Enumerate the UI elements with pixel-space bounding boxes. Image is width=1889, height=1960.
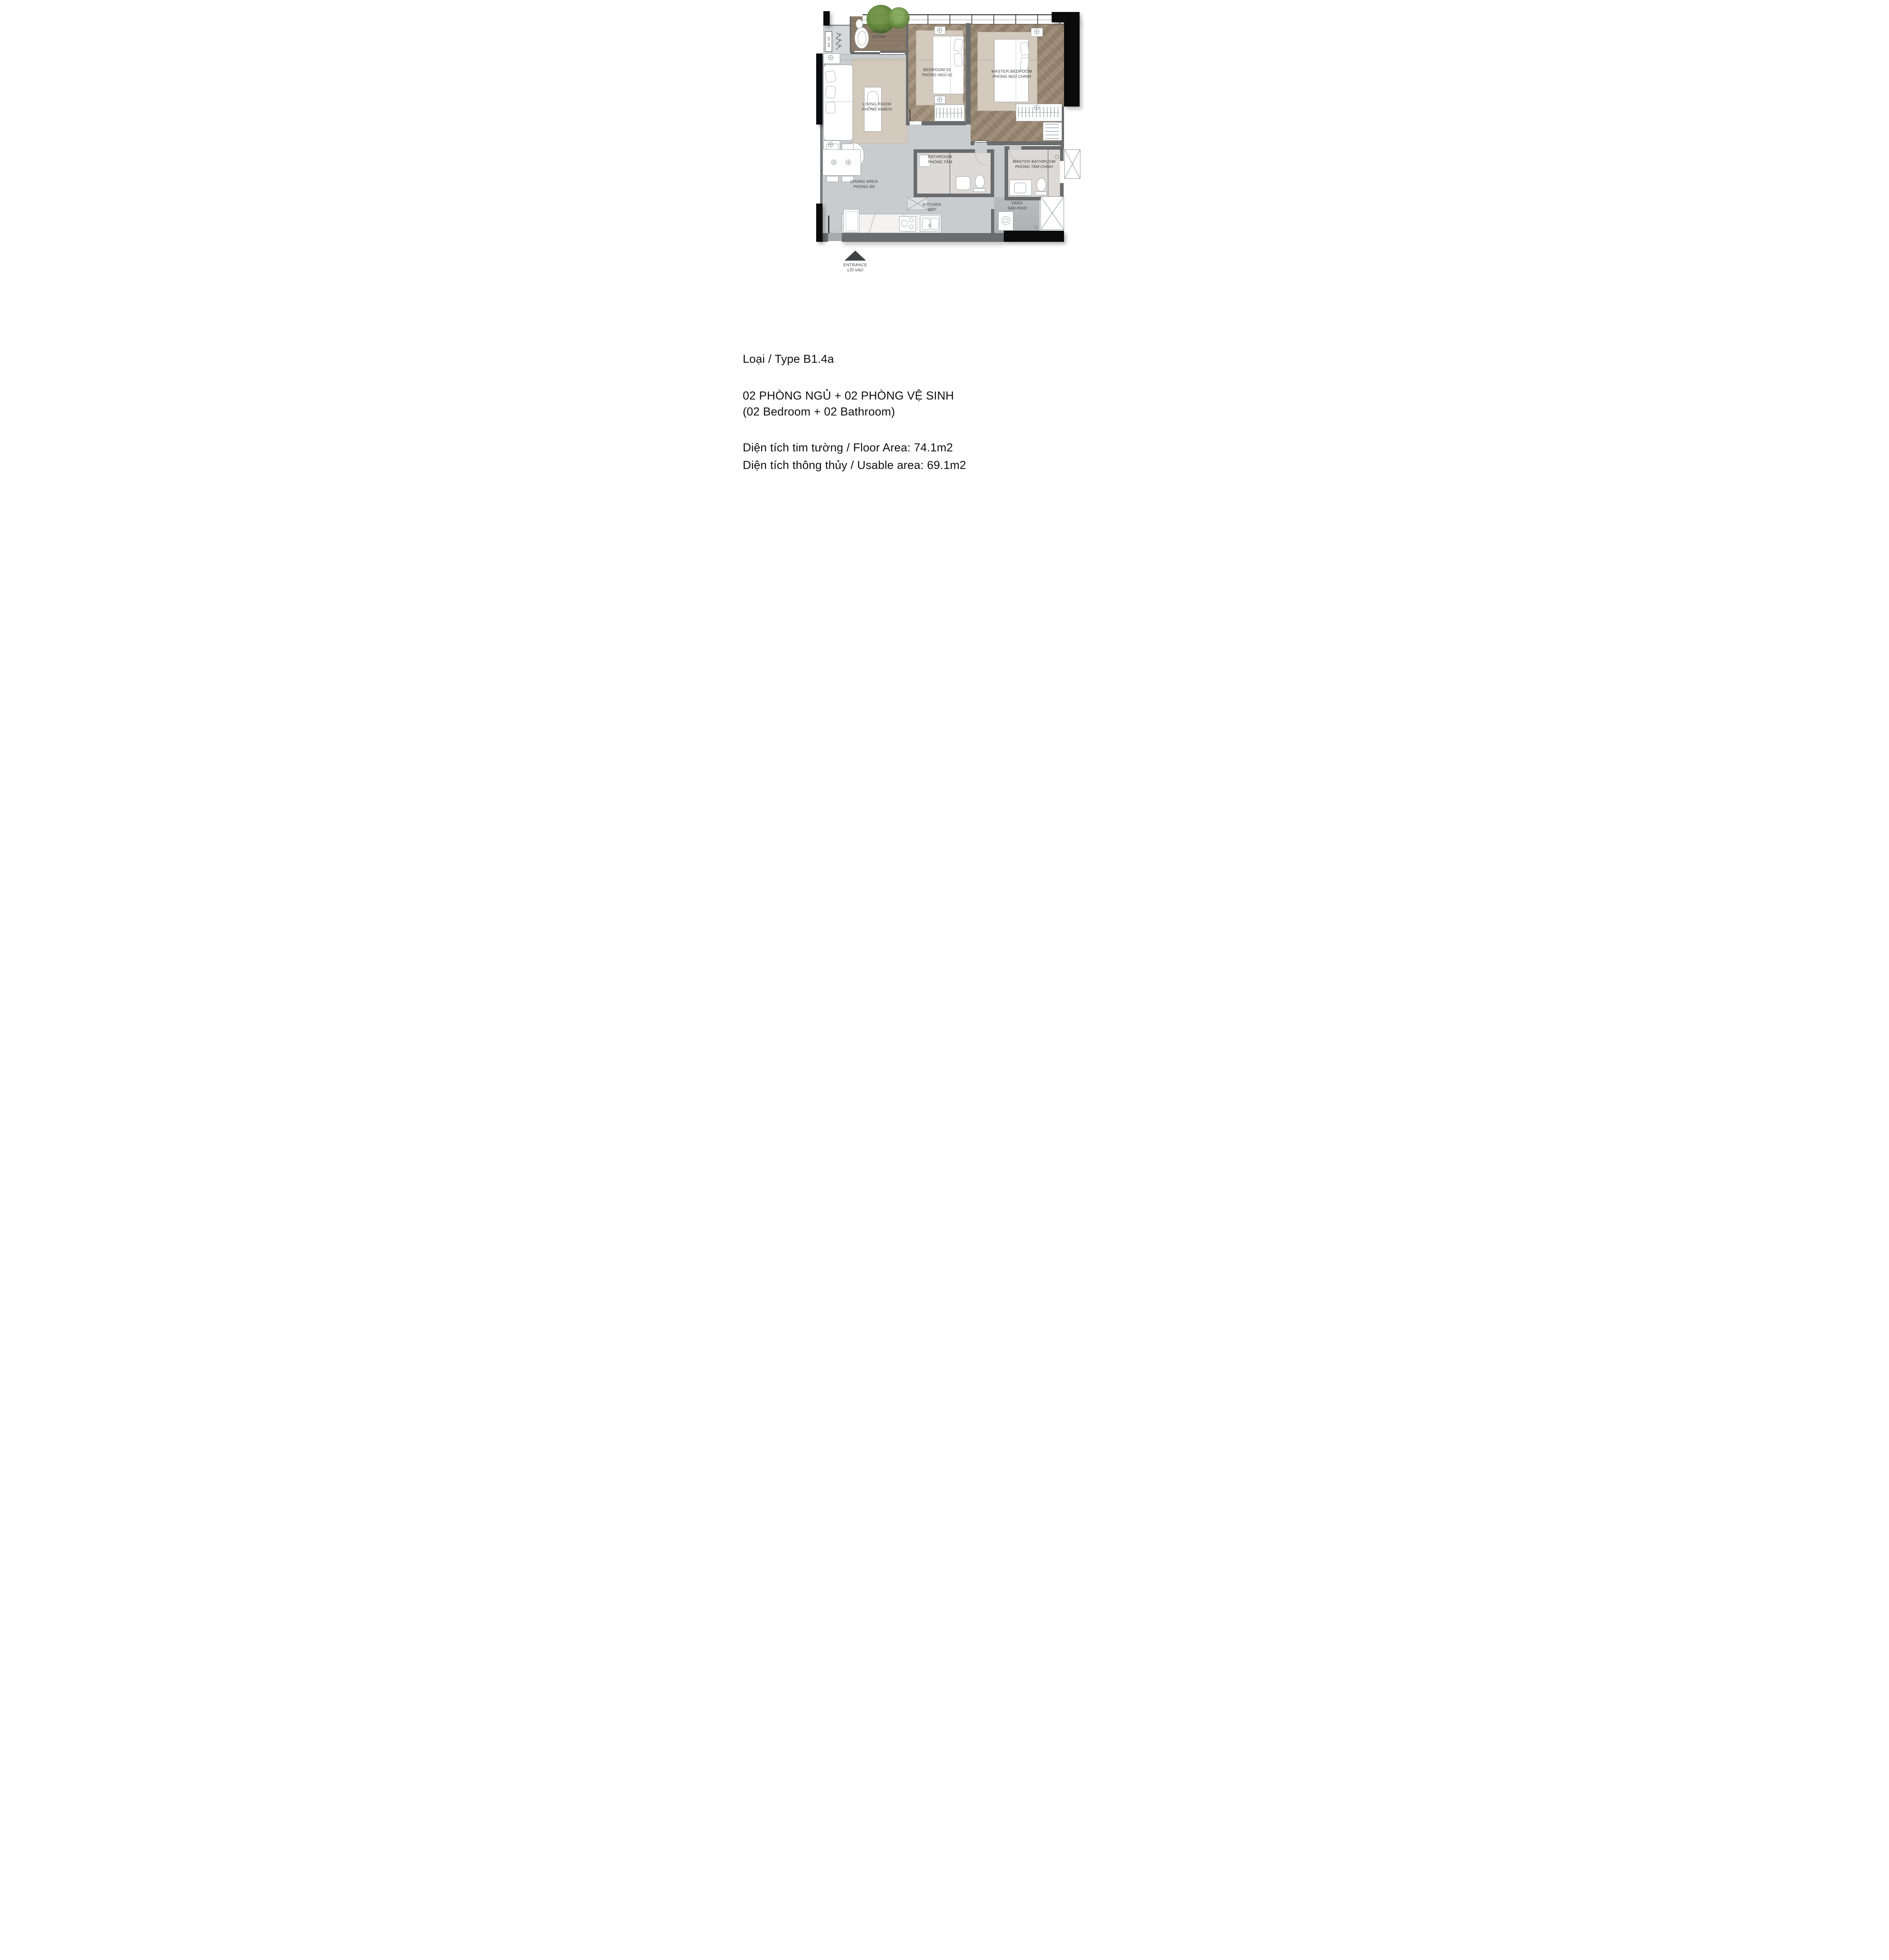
- room-label-loggia-en: LOGGIA: [870, 30, 887, 34]
- room-label-master-bedroom-vi: PHÒNG NGỦ CHÍNH: [991, 75, 1032, 79]
- room-label-kitchen-vi: BẾP: [923, 208, 942, 213]
- burner-icon: [901, 220, 908, 227]
- bathroom-door-gap: [975, 149, 987, 153]
- blanket-fold-line: [950, 36, 951, 94]
- room-label-living-room-en: LIVING ROOM: [862, 102, 892, 107]
- room-label-master-bathroom: MASTER BATHROOM PHÒNG TẮM CHÍNH: [1013, 160, 1055, 169]
- faucet-icon: [928, 224, 931, 227]
- dining-table: [823, 149, 861, 176]
- room-label-master-bathroom-en: MASTER BATHROOM: [1013, 160, 1055, 164]
- kitchen-yard-wall: [991, 209, 994, 233]
- entrance-label-en: ENTRANCE: [843, 263, 867, 268]
- room-label-bathroom-en: BATHROOM: [928, 155, 952, 160]
- room-label-living-room-vi: PHÒNG KHÁCH: [862, 107, 892, 112]
- entrance-door-leaf: [828, 216, 829, 233]
- room-label-kitchen-en: KITCHEN: [923, 203, 942, 208]
- usable-area-line: Diện tích thông thủy / Usable area: 69.1…: [743, 459, 966, 472]
- room-label-loggia: LOGGIA LÔ GIA: [870, 30, 887, 39]
- room-label-master-bedroom-en: MASTER BEDROOM: [991, 69, 1032, 74]
- bedroom02-door-leaf: [910, 109, 910, 121]
- shear-wall-left-lower: [816, 204, 823, 242]
- shear-wall-right: [1064, 21, 1080, 107]
- bottom-wall: [842, 233, 1004, 242]
- room-label-bedroom02-en: BEDROOM 02: [922, 68, 952, 73]
- ac-unit-box: AC X2: [825, 31, 832, 52]
- pillow: [1020, 42, 1029, 55]
- master-toilet-icon: [1036, 178, 1046, 192]
- master-sink-icon: [1014, 183, 1026, 193]
- lamp-icon: [828, 142, 833, 147]
- bath-hallway-floor: [994, 149, 1005, 197]
- pillow: [825, 70, 836, 83]
- storage-closet-x: [1040, 196, 1064, 230]
- entrance-label-vi: LỐI VÀO: [843, 268, 867, 273]
- loggia-planter-inner: [858, 31, 866, 45]
- pillow: [1020, 57, 1029, 71]
- sofa-seat-line: [824, 101, 852, 102]
- dining-chair: [842, 144, 854, 150]
- burner-icon: [909, 218, 914, 222]
- floor-plan: AC X2 LOGGIA LÔ GIA BEDROOM 02 PHÒNG NGỦ…: [816, 9, 1080, 243]
- pillow: [825, 102, 835, 113]
- master-door-leaf: [974, 140, 987, 142]
- pillow: [953, 53, 963, 67]
- pillow: [825, 86, 836, 99]
- lamp-icon: [1034, 105, 1039, 110]
- config-line-vi: 02 PHÒNG NGỦ + 02 PHÒNG VỆ SINH: [743, 390, 954, 403]
- loggia-basin: [856, 19, 863, 29]
- lamp-icon: [1034, 29, 1039, 34]
- bedroom02-bottom-wall-b: [922, 121, 966, 125]
- entrance-label: ENTRANCE LỐI VÀO: [843, 263, 867, 273]
- config-line-en: (02 Bedroom + 02 Bathroom): [743, 405, 895, 419]
- lamp-icon: [937, 28, 942, 33]
- room-label-kitchen: KITCHEN BẾP: [923, 203, 942, 212]
- floor-area-line: Diện tích tim tường / Floor Area: 74.1m2: [743, 441, 953, 455]
- refrigerant-pipe-icon: [834, 32, 844, 50]
- sink-icon: [956, 176, 970, 190]
- loggia-sliding-door: [854, 50, 881, 53]
- lamp-icon: [828, 55, 833, 60]
- bush-plant-icon: [888, 7, 910, 29]
- sink-basin: [931, 218, 939, 230]
- floor-drain-icon: [900, 45, 904, 49]
- sink-basin: [922, 218, 930, 230]
- room-label-master-bedroom: MASTER BEDROOM PHÒNG NGỦ CHÍNH: [991, 69, 1032, 79]
- room-label-yard-vi: SÂN PHƠI: [1007, 206, 1027, 211]
- master-bottom-wall-a: [971, 141, 974, 145]
- shear-wall-left-upper: [816, 53, 823, 125]
- fridge-inner: [846, 212, 858, 231]
- loggia-sliding-door-2: [879, 52, 906, 55]
- toilet-icon: [975, 175, 985, 188]
- room-label-loggia-vi: LÔ GIA: [870, 35, 887, 40]
- floorplan-page: AC X2 LOGGIA LÔ GIA BEDROOM 02 PHÒNG NGỦ…: [708, 0, 1181, 490]
- entrance-arrow-icon: [845, 251, 866, 261]
- wardrobe-rail: [1018, 112, 1060, 113]
- table-lamp-icon: [846, 160, 851, 165]
- wardrobe-hangers: [1045, 124, 1059, 139]
- toilet-tank: [973, 188, 985, 192]
- room-label-bathroom-vi: PHÒNG TẮM: [928, 160, 952, 165]
- bedroom02-left-wall: [906, 23, 908, 125]
- shear-wall-bottom-right: [1004, 231, 1064, 242]
- table-lamp-icon: [831, 160, 837, 165]
- entrance-threshold: [828, 233, 842, 241]
- room-label-yard: YARD SÂN PHƠI: [1007, 201, 1027, 211]
- ac-loggia-wall: [850, 16, 851, 52]
- exterior-ledge-x: [1064, 149, 1080, 179]
- bottom-wall-stub: [823, 233, 828, 242]
- room-label-bathroom: BATHROOM PHÒNG TẮM: [928, 155, 952, 164]
- master-bath-window: [1060, 160, 1064, 184]
- master-bathroom-door-gap: [1009, 146, 1021, 150]
- ac-unit-label: AC X2: [827, 36, 831, 47]
- column-top-left: [823, 11, 830, 26]
- bedrooms-divider-wall: [966, 23, 971, 125]
- room-label-bedroom02-vi: PHÒNG NGỦ 02: [922, 73, 952, 78]
- room-label-dining-area-vi: PHÒNG ĂN: [851, 185, 878, 190]
- room-label-dining-area-en: DINING AREA: [851, 180, 878, 184]
- floor-drain-icon: [1034, 226, 1038, 229]
- lamp-icon: [937, 97, 942, 102]
- master-shower-head-icon: [1055, 155, 1059, 159]
- room-label-yard-en: YARD: [1007, 201, 1027, 206]
- unit-type-line: Loại / Type B1.4a: [743, 353, 834, 366]
- master-bottom-wall-b: [987, 141, 1064, 145]
- pillow: [953, 39, 963, 51]
- dining-chair: [827, 176, 839, 182]
- room-label-dining-area: DINING AREA PHÒNG ĂN: [851, 180, 878, 189]
- wardrobe-rail: [936, 113, 963, 113]
- bedroom02-bottom-wall-a: [906, 121, 910, 125]
- room-label-bedroom02: BEDROOM 02 PHÒNG NGỦ 02: [922, 68, 952, 77]
- room-label-living-room: LIVING ROOM PHÒNG KHÁCH: [862, 102, 892, 112]
- room-label-master-bathroom-vi: PHÒNG TẮM CHÍNH: [1013, 165, 1055, 170]
- master-toilet-tank: [1035, 192, 1047, 195]
- master-shower-glass: [1048, 150, 1048, 197]
- washer-drum-inner: [1003, 218, 1008, 223]
- burner-icon: [909, 225, 914, 229]
